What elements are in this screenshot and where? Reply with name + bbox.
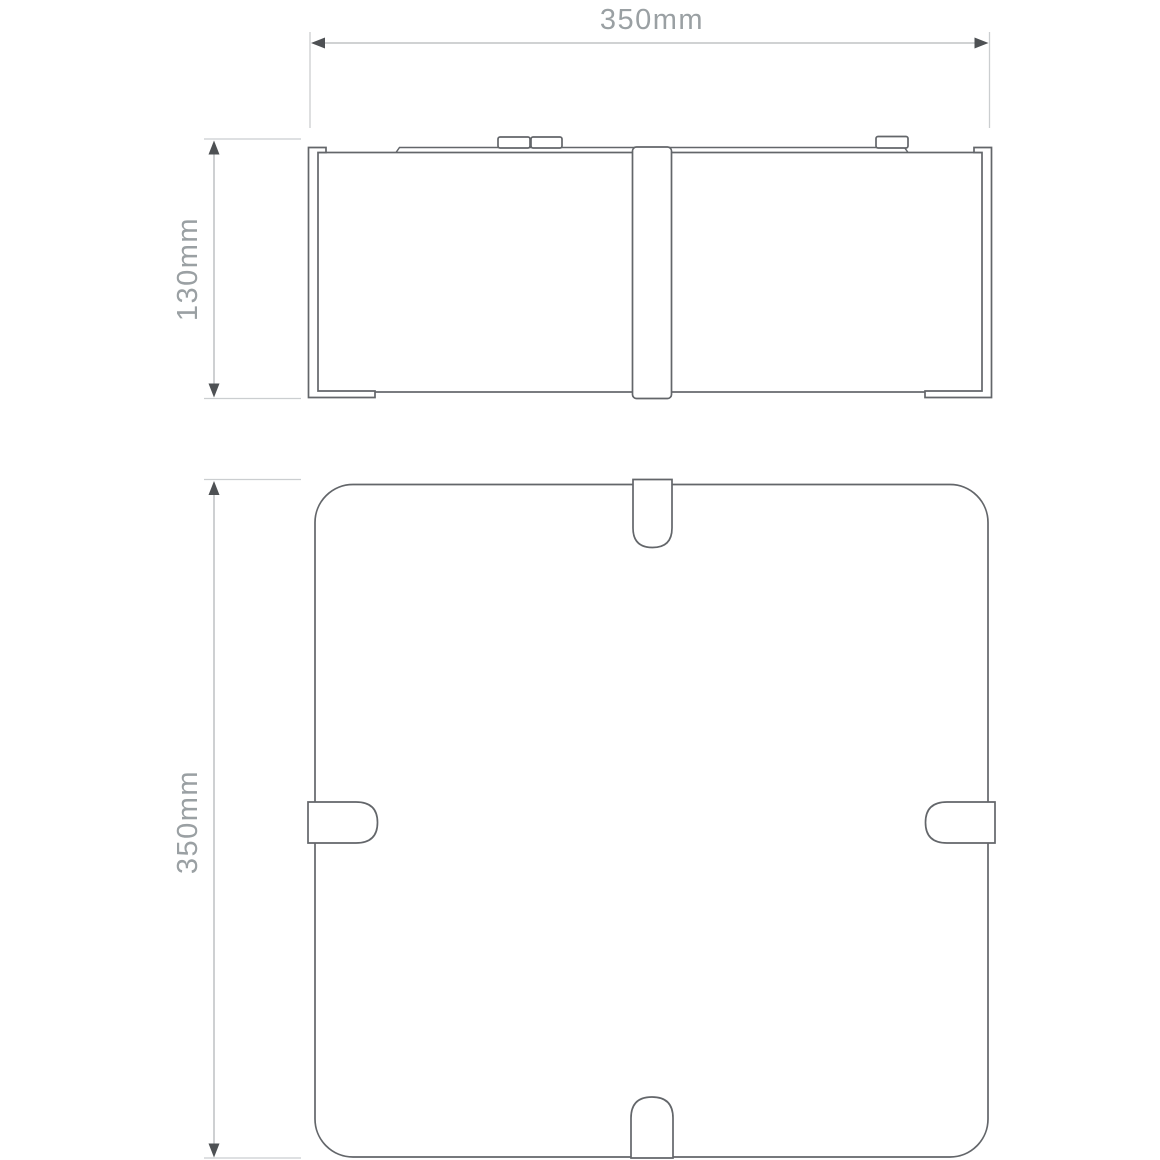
side-left-bracket	[309, 148, 376, 398]
side-center-band	[633, 147, 672, 399]
side-clip-tab-right	[876, 137, 908, 149]
arrowhead-down-icon	[209, 384, 220, 398]
dimension-label: 130mm	[172, 217, 204, 321]
dimension-label: 350mm	[172, 770, 204, 874]
side-view	[309, 137, 992, 399]
plan-body-outline	[315, 485, 988, 1158]
arrowhead-left-icon	[311, 38, 325, 49]
plan-tab-bottom	[631, 1097, 673, 1158]
plan-tab-left	[308, 802, 378, 843]
plan-tab-right	[926, 802, 996, 843]
side-clip-tab-left	[498, 137, 530, 148]
dimension-side-height: 130mm	[172, 139, 301, 399]
plan-view	[308, 480, 995, 1159]
dimension-label: 350mm	[600, 4, 704, 36]
arrowhead-down-icon	[209, 1144, 220, 1158]
dimension-side-width: 350mm	[310, 4, 990, 128]
plan-tab-top	[633, 480, 672, 548]
dimension-plan-height: 350mm	[172, 480, 301, 1159]
arrowhead-up-icon	[209, 141, 220, 155]
arrowhead-up-icon	[209, 481, 220, 495]
side-right-bracket	[925, 148, 992, 398]
side-clip-tab-left-2	[531, 137, 562, 148]
technical-drawing-canvas: 350mm 130mm 350mm	[0, 0, 1160, 1160]
arrowhead-right-icon	[975, 38, 989, 49]
